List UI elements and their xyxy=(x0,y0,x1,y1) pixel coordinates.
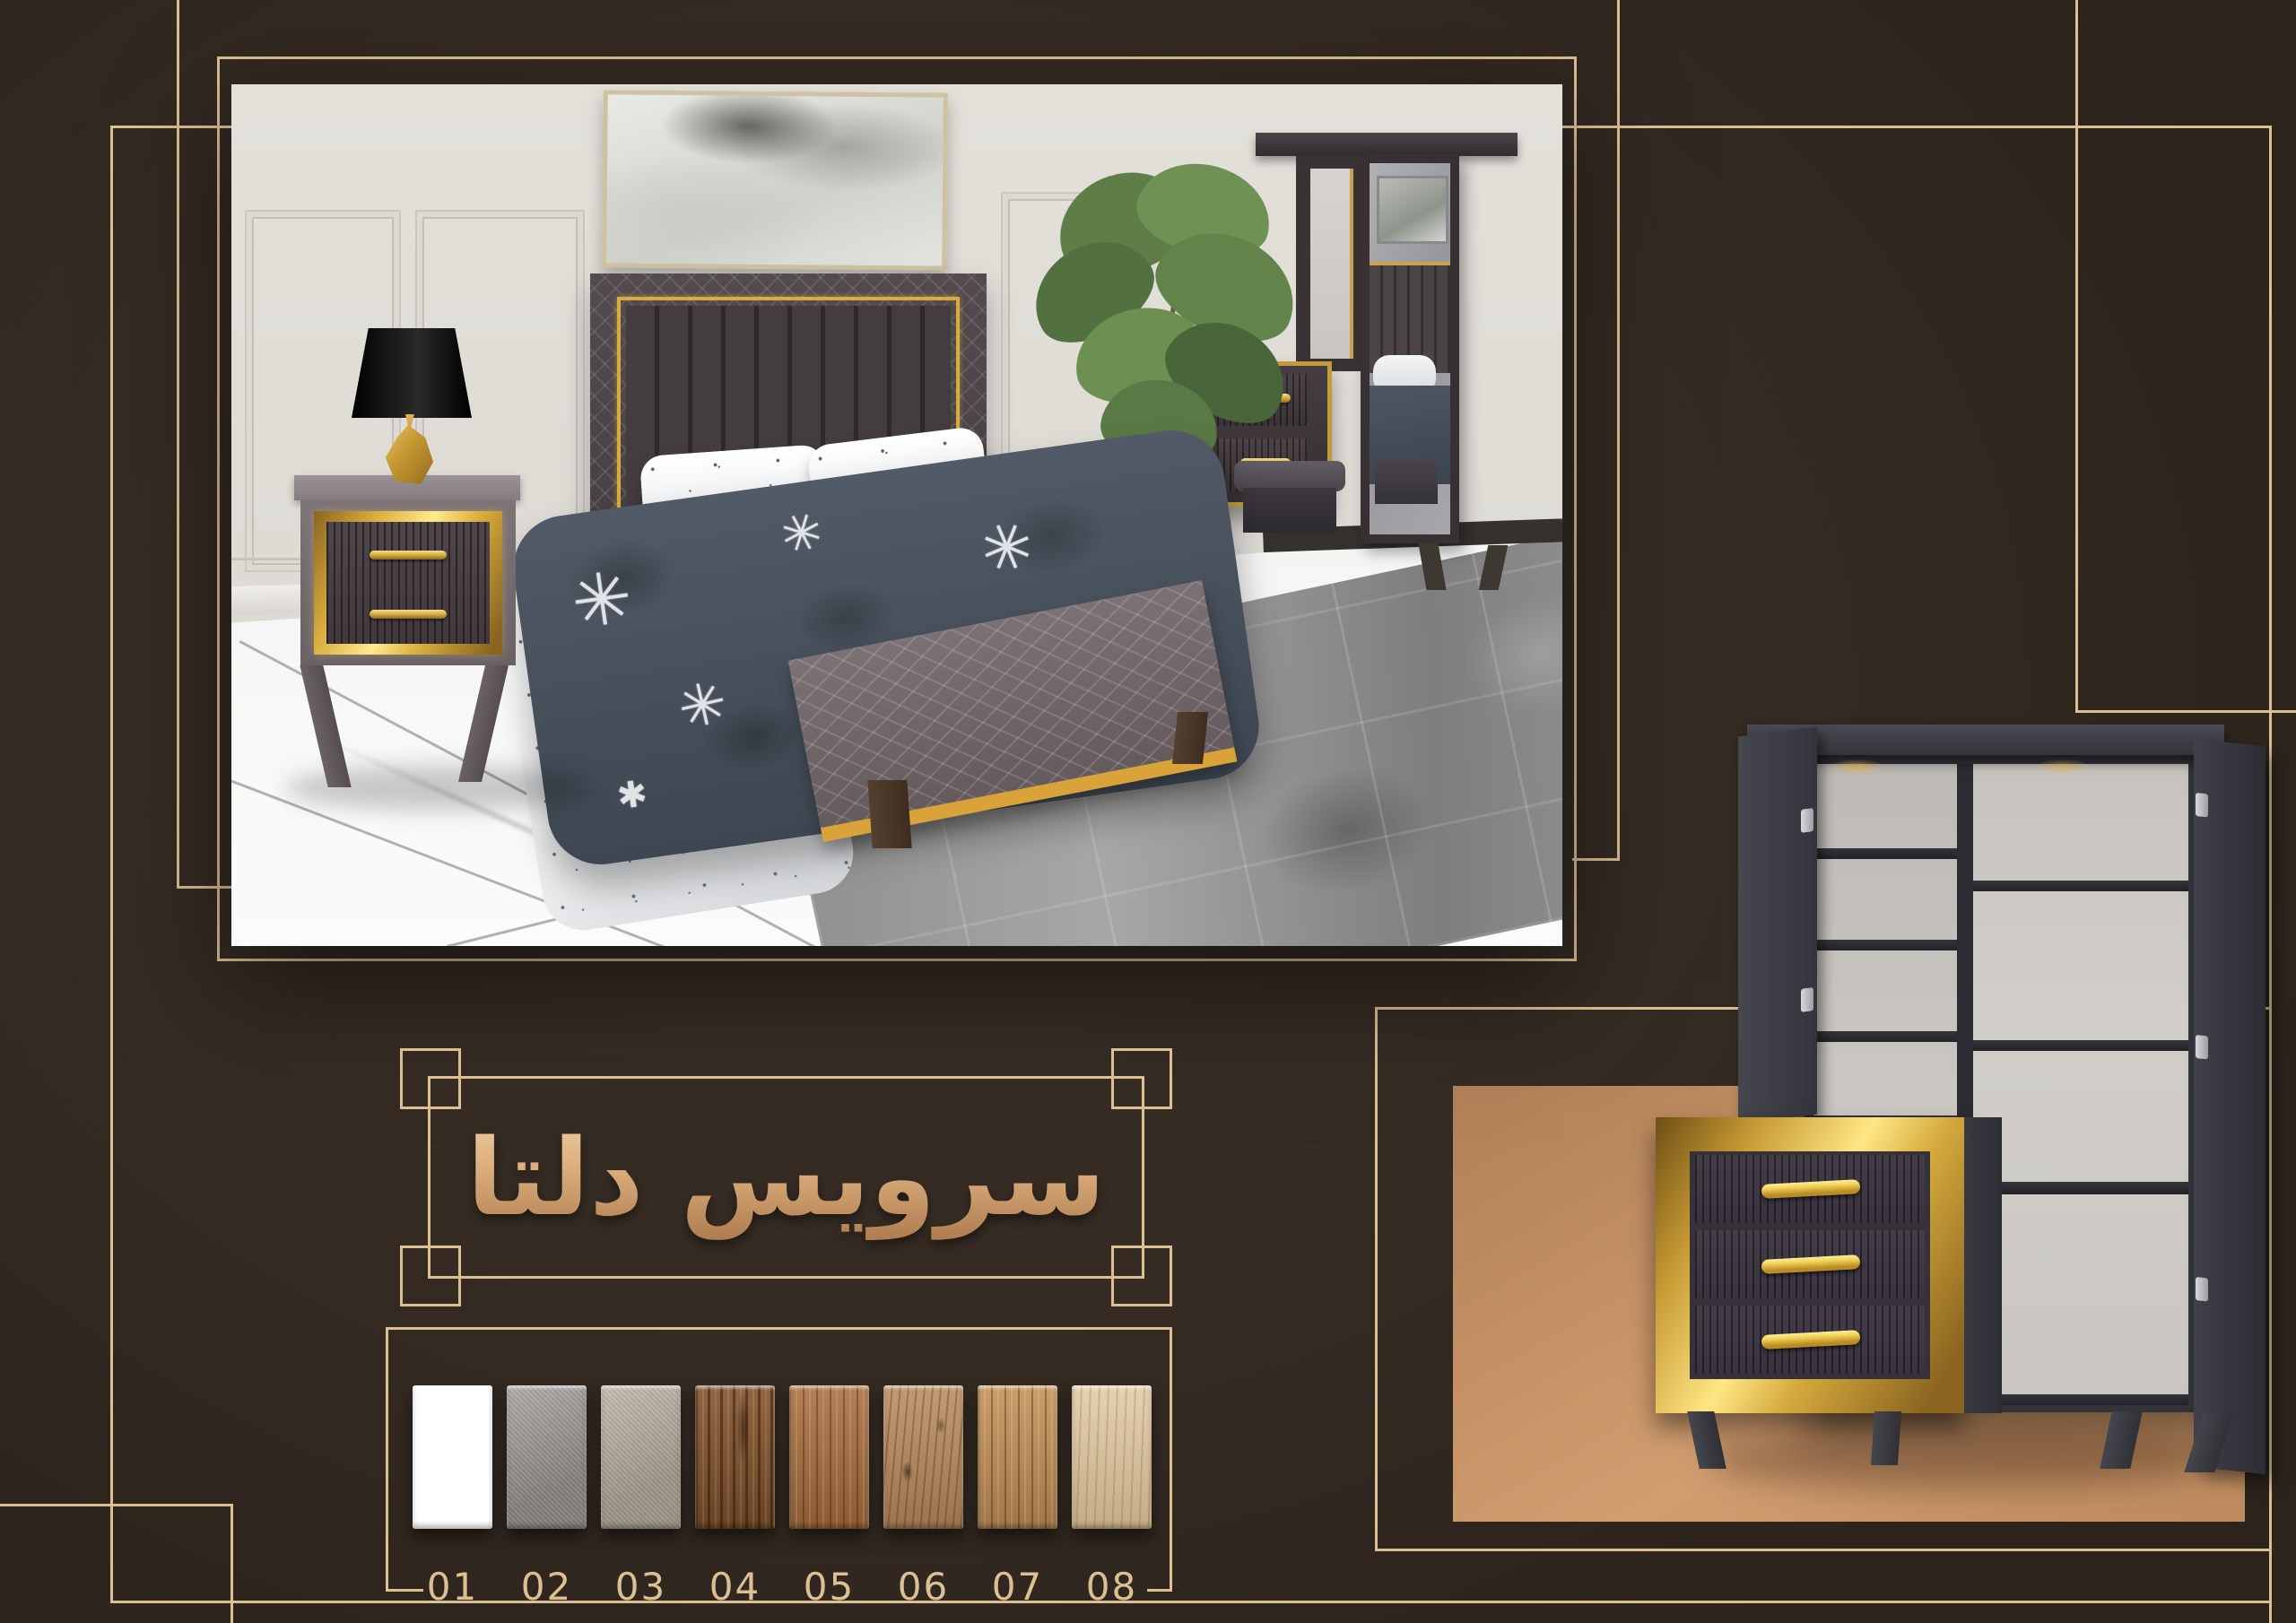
decor-line xyxy=(2075,0,2078,712)
mirror-reflection-stool xyxy=(1375,459,1438,504)
decor-line xyxy=(110,126,113,1603)
wardrobe-left-door xyxy=(1738,727,1817,1124)
cabinet-light-glint xyxy=(2036,759,2090,775)
swatch-label: 08 xyxy=(1086,1565,1137,1609)
swatch-02 xyxy=(507,1385,587,1529)
dandelion-motif: ✱ xyxy=(615,776,650,815)
door-hinge-icon xyxy=(2196,793,2208,817)
swatch-label: 03 xyxy=(615,1565,666,1609)
decor-line xyxy=(1617,0,1620,861)
swatch-item: 05 xyxy=(789,1385,869,1609)
swatch-08 xyxy=(1072,1385,1152,1529)
decor-line xyxy=(177,0,179,888)
swatch-04 xyxy=(695,1385,775,1529)
drawer-handle xyxy=(370,610,447,619)
title-frame: سرویس دلتا xyxy=(428,1076,1144,1279)
swatch-item: 04 xyxy=(695,1385,775,1609)
decor-line xyxy=(1572,858,1620,861)
swatch-label: 04 xyxy=(709,1565,761,1609)
swatch-item: 03 xyxy=(601,1385,681,1609)
swatch-01 xyxy=(413,1385,492,1529)
bedroom-photo: ✳ ✳ ✳ ✳ ✳ ✳ ✱ ✱ xyxy=(231,84,1562,946)
dresser-mirror xyxy=(1361,154,1459,543)
decor-line xyxy=(1375,1549,2272,1551)
dandelion-motif: ✳ xyxy=(665,669,736,743)
swatch-label: 01 xyxy=(427,1565,478,1609)
swatch-label: 02 xyxy=(521,1565,572,1609)
page-title: سرویس دلتا xyxy=(430,1079,1142,1276)
door-hinge-icon xyxy=(1801,808,1813,833)
decor-line xyxy=(2269,126,2272,1623)
swatch-label: 07 xyxy=(992,1565,1043,1609)
decor-line xyxy=(230,1504,233,1623)
wardrobe-shelf xyxy=(1813,1031,1957,1042)
wall-art xyxy=(602,90,948,270)
swatch-label: 05 xyxy=(804,1565,855,1609)
swatch-05 xyxy=(789,1385,869,1529)
catalog-page: ✳ ✳ ✳ ✳ ✳ ✳ ✱ ✱ سرویس دلتا xyxy=(0,0,2296,1623)
wardrobe-top-slab xyxy=(1747,725,2224,755)
drawer-handle xyxy=(370,551,447,560)
wardrobe-shelf xyxy=(1973,881,2188,891)
dresser-top-slab xyxy=(1256,133,1518,156)
table-lamp-shade xyxy=(352,328,472,418)
nightstand-gold-frame xyxy=(314,511,502,655)
swatch-item: 08 xyxy=(1072,1385,1152,1609)
swatch-06 xyxy=(883,1385,963,1529)
swatch-03 xyxy=(601,1385,681,1529)
swatch-item: 06 xyxy=(883,1385,963,1609)
swatch-item: 02 xyxy=(507,1385,587,1609)
dresser-frame-inner xyxy=(1310,169,1353,359)
swatch-panel: 01 02 03 04 05 06 xyxy=(386,1327,1172,1589)
swatch-item: 01 xyxy=(413,1385,492,1609)
decor-line xyxy=(0,1504,233,1506)
swatch-07 xyxy=(978,1385,1057,1529)
wardrobe-shelf xyxy=(1813,940,1957,950)
swatch-row: 01 02 03 04 05 06 xyxy=(413,1385,1152,1609)
dandelion-motif: ✳ xyxy=(971,508,1044,586)
decor-line xyxy=(1375,1007,1378,1551)
bed-leg xyxy=(867,780,911,848)
dandelion-motif: ✳ xyxy=(567,560,637,640)
copper-backdrop xyxy=(1453,1086,2245,1522)
nightstand-drawers xyxy=(326,522,490,644)
swatch-label: 06 xyxy=(898,1565,949,1609)
mirror-glass xyxy=(1370,163,1450,534)
bed-leg xyxy=(1172,712,1208,764)
door-hinge-icon xyxy=(2196,1035,2208,1059)
wardrobe-shelf xyxy=(1973,1040,2188,1051)
wardrobe-shelf xyxy=(1813,848,1957,859)
dandelion-motif: ✳ xyxy=(773,504,828,564)
wardrobe-interior-left xyxy=(1813,764,1957,1115)
decor-line xyxy=(2075,710,2296,713)
swatch-item: 07 xyxy=(978,1385,1057,1609)
decor-line xyxy=(1375,1007,2272,1010)
mirror-reflection-art xyxy=(1377,176,1448,244)
cabinet-light-glint xyxy=(1830,759,1883,775)
